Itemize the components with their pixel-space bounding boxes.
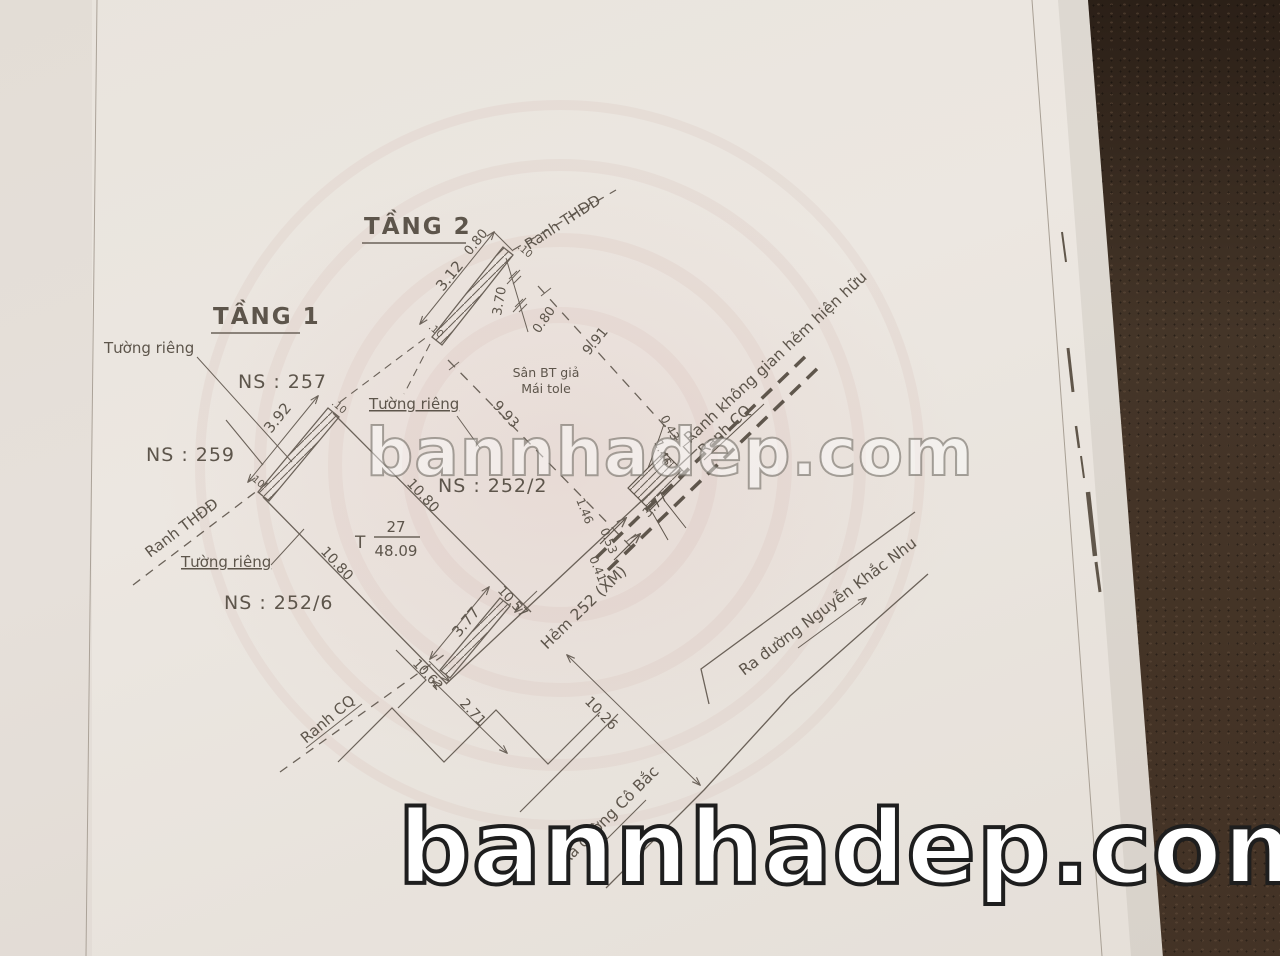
parcel-ref-prefix: T xyxy=(354,533,366,553)
watermark-center: bannhadep.com xyxy=(366,420,974,486)
tang2-heading: TẦNG 2 xyxy=(364,209,472,240)
label-san-bt: Sân BT giả xyxy=(513,365,580,380)
parcel-ns252-6: NS : 252/6 xyxy=(224,592,334,614)
dim-1-46-b: 1.46 xyxy=(573,496,596,526)
photo-of-plan-document: TẦNG 2 3.12 0.80 .10 .10 Ranh THĐĐ 3.70 … xyxy=(0,0,1280,956)
dim-0-41: 0.41 xyxy=(586,554,609,584)
label-tuong-rieng-3: Tường riêng xyxy=(180,553,271,571)
dim-10-26: 10.26 xyxy=(581,694,620,734)
dim-3-70: 3.70 xyxy=(490,286,510,317)
parcel-ns257: NS : 257 xyxy=(238,371,327,393)
dim-2-71: 2.71 xyxy=(456,696,489,730)
watermark-bottom: bannhadep.com xyxy=(398,798,1280,900)
parcel-ref-lot: 27 xyxy=(386,518,405,536)
tang1-heading: TẦNG 1 xyxy=(213,299,321,330)
parcel-ns259: NS : 259 xyxy=(146,444,235,466)
label-mai-tole: Mái tole xyxy=(521,381,571,396)
label-tuong-rieng-1: Tường riêng xyxy=(103,339,194,357)
parcel-ref-area: 48.09 xyxy=(375,542,418,560)
label-tuong-rieng-2: Tường riêng xyxy=(368,395,459,413)
